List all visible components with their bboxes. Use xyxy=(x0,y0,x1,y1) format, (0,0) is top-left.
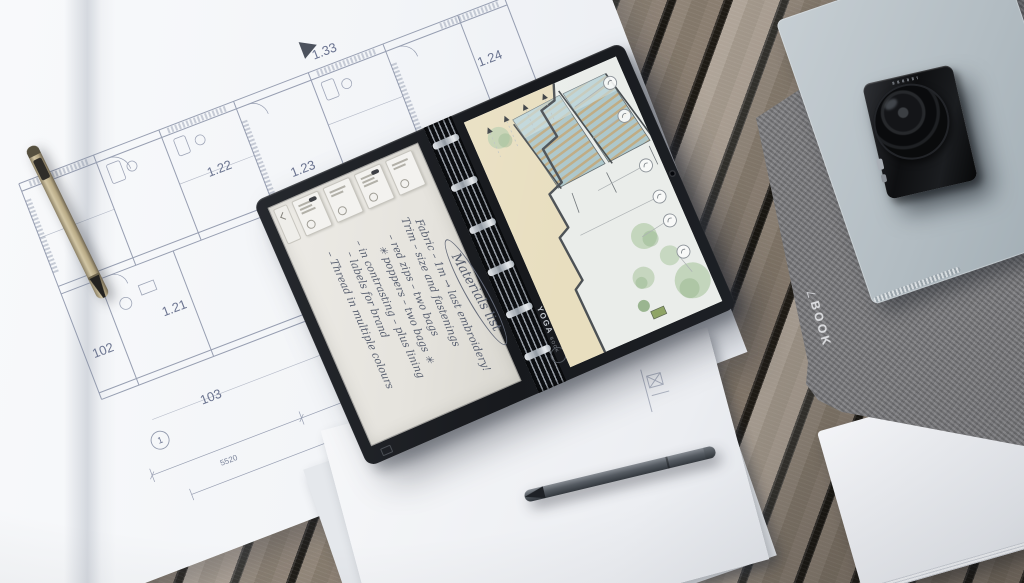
stylus-seam xyxy=(665,456,670,468)
display-screen xyxy=(464,56,723,367)
pen-status-icon xyxy=(308,196,317,203)
keyboard-toggle-icon xyxy=(380,445,393,457)
room-number: 1.21 xyxy=(160,296,189,319)
front-camera-icon xyxy=(670,171,675,176)
architecture-rendering xyxy=(464,56,723,367)
camera-side-button xyxy=(876,158,884,170)
room-number: 102 xyxy=(90,339,116,361)
camera-lens-icon xyxy=(866,76,957,167)
note-card-circle-icon xyxy=(305,218,317,230)
note-card-circle-icon xyxy=(399,178,411,190)
grid-marker: 1 xyxy=(156,435,164,446)
camera-side-button xyxy=(881,174,888,183)
room-number: 1.22 xyxy=(205,157,234,180)
dimension-label: 5520 xyxy=(219,453,239,468)
note-card-circle-icon xyxy=(368,191,380,203)
room-number: 1.24 xyxy=(475,47,504,70)
note-card-circle-icon xyxy=(336,205,348,217)
room-number: 1.33 xyxy=(310,39,339,62)
photo-scene: BOOK xyxy=(0,0,1024,583)
room-number: 103 xyxy=(198,386,224,408)
pen-status-icon xyxy=(371,169,380,176)
